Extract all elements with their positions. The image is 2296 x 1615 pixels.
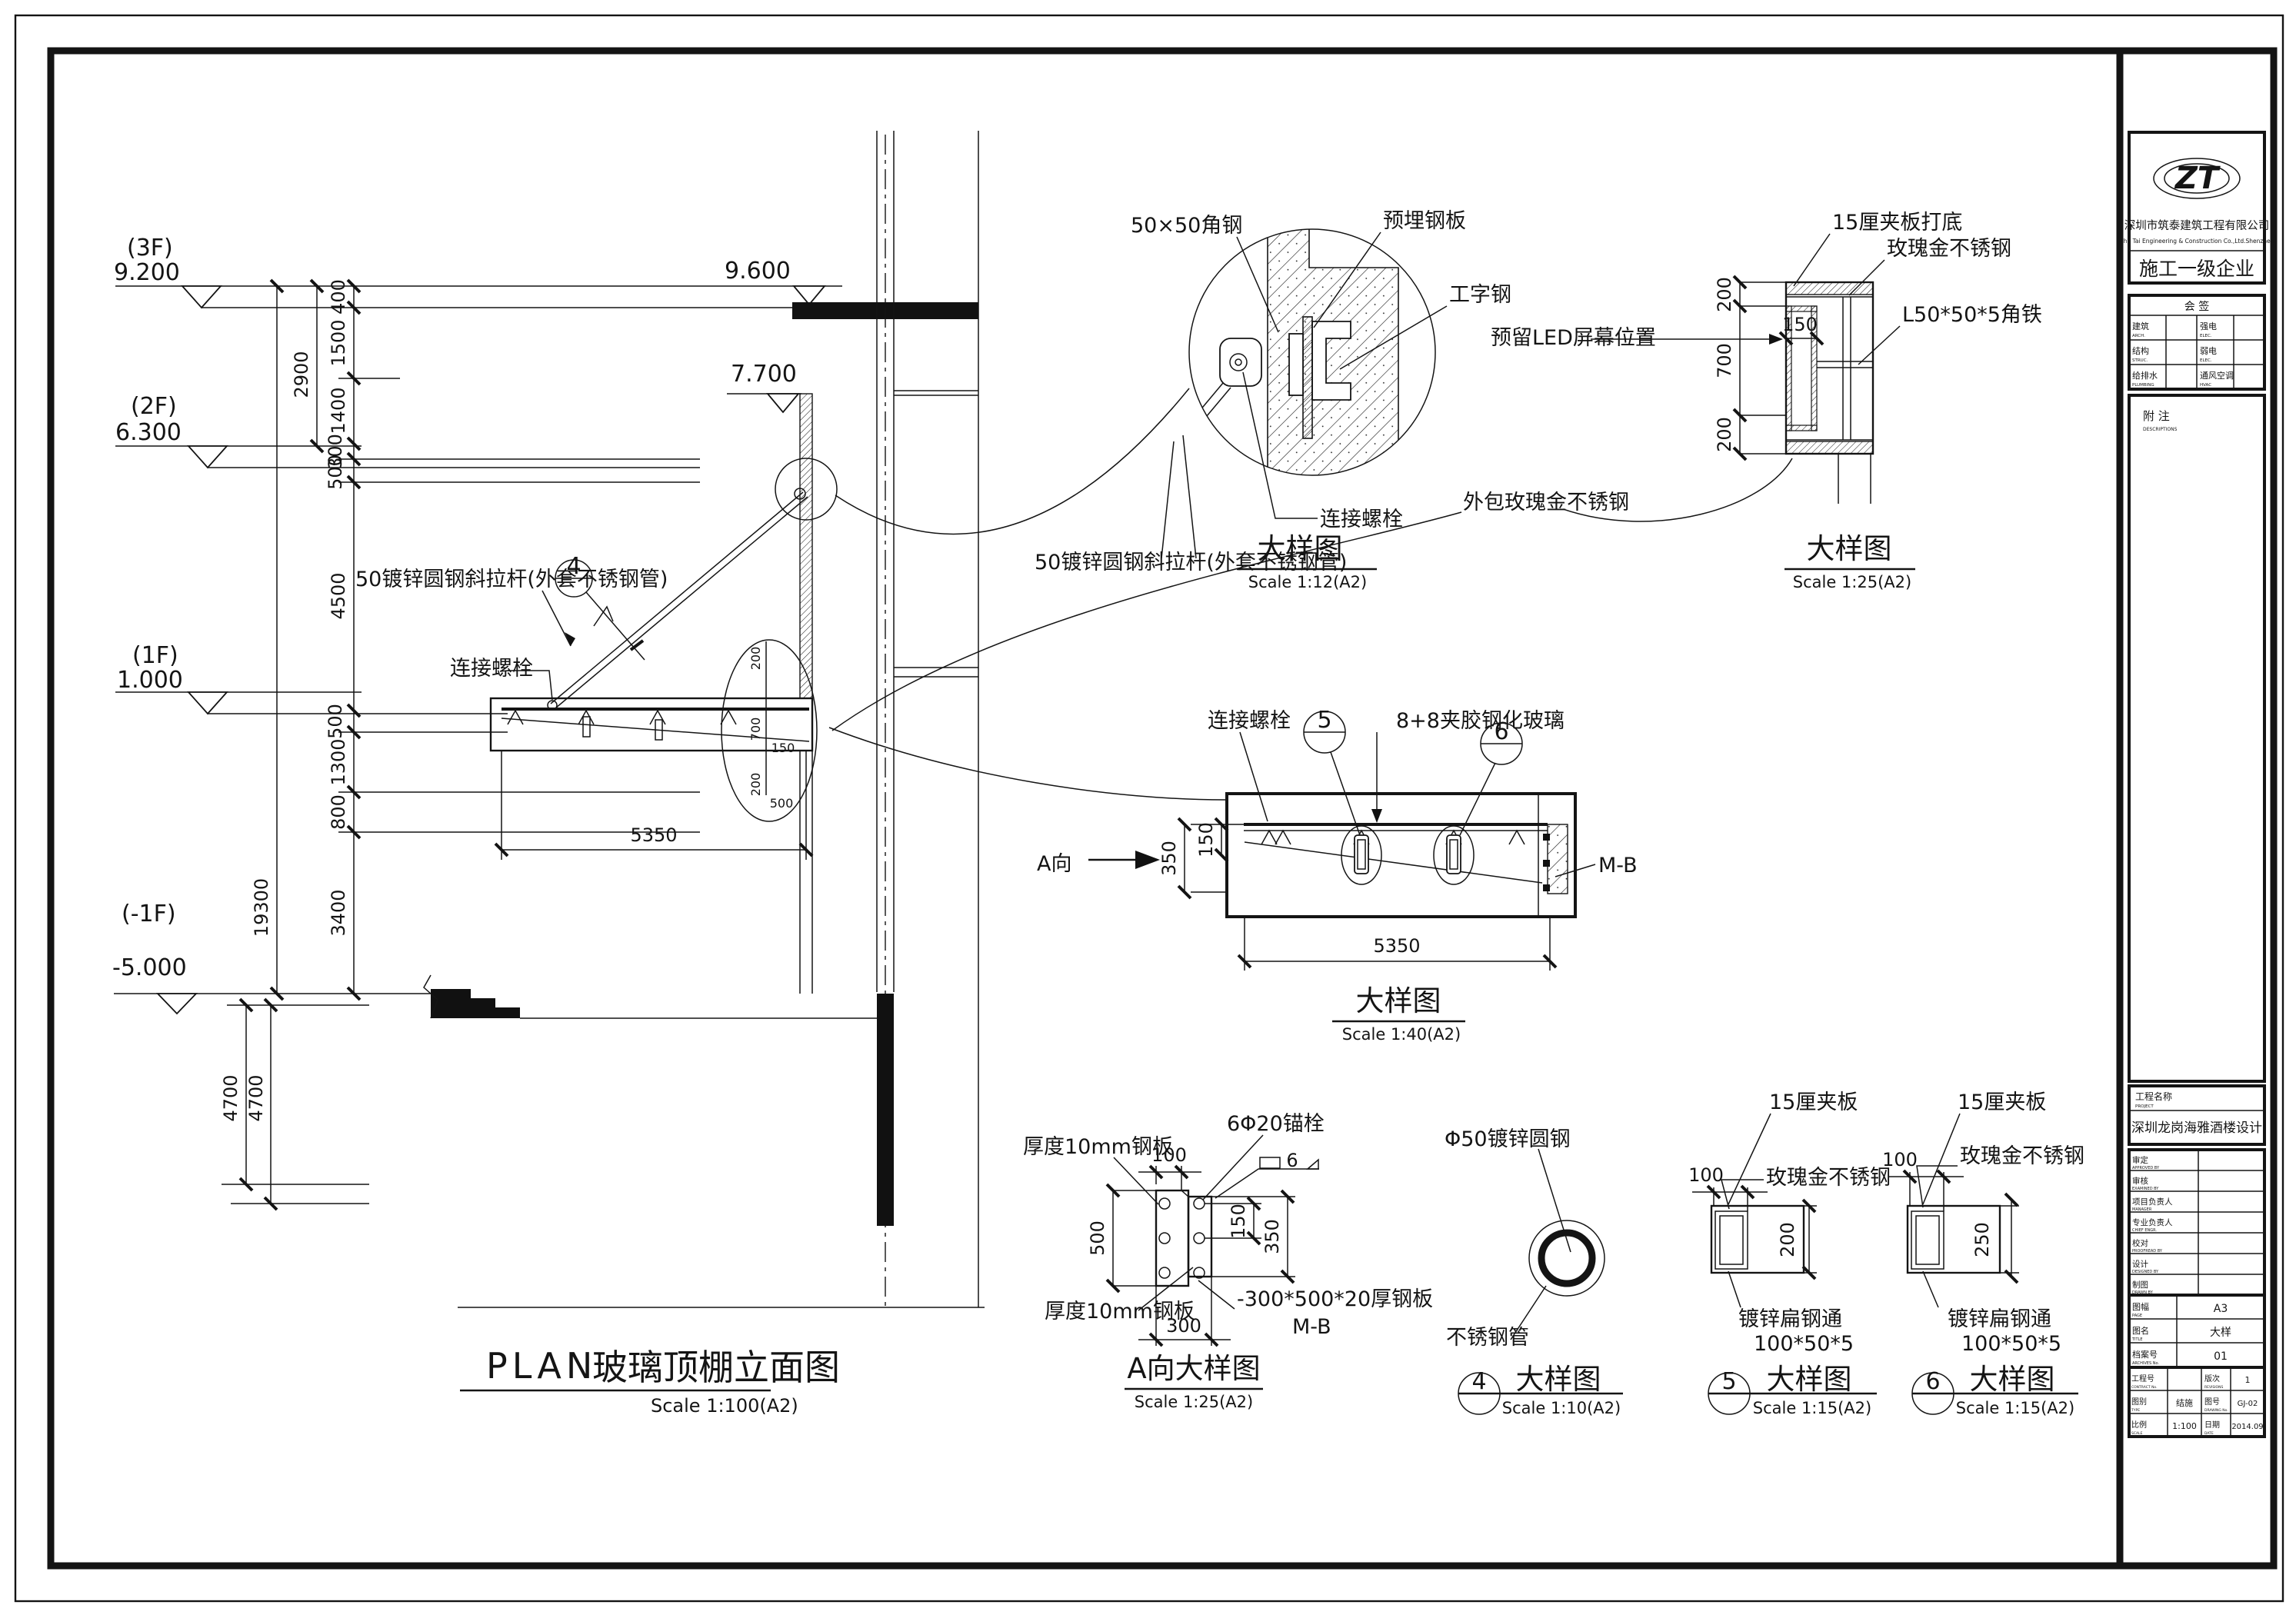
d2-label-rose: 玫瑰金不锈钢 (1887, 237, 2011, 261)
detail-6: 100 250 15厘夹板 玫瑰金不锈钢 镀锌扁钢通 100*50*5 6 大样… (1882, 1091, 2084, 1417)
remark-label: 附 注 (2143, 409, 2170, 423)
d4-label-tube: 不锈钢管 (1446, 1326, 1529, 1350)
title-block: ZT 深圳市筑泰建筑工程有限公司 Zhu Tai Engineering & C… (2120, 132, 2274, 1437)
footer-contract-label: 工程号 (2131, 1374, 2154, 1384)
row-proof-en: PROOFREAD BY (2132, 1249, 2163, 1254)
footer-no-value: GJ-02 (2238, 1400, 2258, 1408)
label-bolt: 连接螺栓 (450, 657, 533, 681)
info-name-label: 图名 (2132, 1325, 2149, 1336)
d1-label-embed: 预埋钢板 (1383, 209, 1466, 233)
mini-dim-200b: 200 (748, 773, 763, 797)
d3-cleats (1261, 831, 1525, 844)
dA-label-base-plate: -300*500*20厚钢板 (1237, 1287, 1433, 1311)
d6-bubble: 6 (1925, 1368, 1940, 1395)
dim-400: 400 (328, 279, 349, 315)
cad-canvas: (3F) 9.200 (2F) 6.300 (1F) 1.000 (-1F) -… (0, 0, 2296, 1615)
sign-plumb-en: PLUMBING (2132, 383, 2154, 388)
sign-arch-en: ARCH. (2132, 334, 2145, 338)
project-label: 工程名称 (2135, 1091, 2172, 1102)
dim-3400: 3400 (328, 889, 349, 936)
detail-2: 200 700 200 150 15厘夹板打底 玫瑰金不锈钢 L50*50*5角… (1463, 211, 2042, 591)
d4-scale: Scale 1:10(A2) (1502, 1399, 1621, 1417)
row-manager: 项目负责人 (2132, 1197, 2173, 1207)
d2-dim-150: 150 (1782, 314, 1818, 335)
sign-elec1: 强电 (2200, 321, 2217, 331)
d2-dim-200b: 200 (1714, 417, 1735, 452)
company-logo: ZT (2174, 161, 2221, 196)
sign-hvac: 通风空调 (2200, 370, 2234, 381)
dA-label-plate-top: 厚度10mm钢板 (1023, 1135, 1173, 1159)
level-9600-value: 9.600 (725, 258, 791, 285)
sign-hvac-en: HVAC (2200, 383, 2211, 388)
level-1f-value: 1.000 (117, 667, 183, 694)
dA-weld-6: 6 (1286, 1150, 1298, 1171)
project-label-en: PROJECT (2135, 1104, 2154, 1109)
level-3f-value: 9.200 (114, 259, 180, 286)
d3-label-bolt: 连接螺栓 (1208, 709, 1291, 733)
info-file-label: 档案号 (2132, 1349, 2158, 1360)
footer-rev-value: 1 (2245, 1375, 2251, 1385)
d3-dim-150: 150 (1195, 822, 1217, 857)
level-2f-value: 6.300 (115, 419, 182, 446)
detail-bubble-4: 4 (566, 553, 581, 580)
d3-label-a-dir: A向 (1037, 852, 1071, 876)
d2-dim-700: 700 (1714, 343, 1735, 378)
row-approved-en: APPROVED BY (2132, 1166, 2160, 1170)
d4-label-rod: Φ50镀锌圆钢 (1445, 1127, 1571, 1151)
d2-scale: Scale 1:25(A2) (1793, 573, 1911, 591)
project-name: 深圳龙岗海雅酒楼设计 (2131, 1121, 2262, 1136)
d3-bubble-5: 5 (1317, 707, 1331, 734)
dim-1300: 1300 (328, 738, 349, 785)
row-examined: 审核 (2132, 1176, 2149, 1186)
dim-500b: 500 (325, 704, 346, 739)
dim-500a: 500 (325, 455, 346, 490)
info-size-en: PAGE (2132, 1314, 2142, 1318)
level-1f-name: (1F) (132, 642, 178, 669)
footer-date-value: 2014.09 (2231, 1423, 2263, 1431)
footer-scale-en: SCALE (2131, 1431, 2143, 1436)
d5-dim-100: 100 (1688, 1164, 1724, 1186)
main-title-cn: 玻璃顶棚立面图 (592, 1347, 840, 1388)
title-block-signatures: 会 签 建筑 ARCH. 强电 ELEC. 结构 STRUC. 弱电 ELEC.… (2129, 295, 2264, 389)
dA-dim-500: 500 (1087, 1220, 1108, 1256)
detail-1: 50×50角钢 预埋钢板 工字钢 50镀锌圆钢斜拉杆(外套不锈钢管) 连接螺栓 … (1035, 209, 1511, 591)
level-b1f-name: (-1F) (122, 901, 176, 927)
dA-dim-150: 150 (1228, 1204, 1249, 1239)
dA-dim-100: 100 (1151, 1144, 1187, 1166)
d3-label-mb: M-B (1598, 854, 1638, 877)
d2-label-angle-iron: L50*50*5角铁 (1902, 303, 2042, 327)
dim-2900: 2900 (291, 351, 312, 398)
mini-dim-150: 150 (771, 741, 795, 755)
dim-4700b: 4700 (245, 1074, 267, 1121)
d1-label-bolt: 连接螺栓 (1320, 508, 1403, 531)
sign-elec1-en: ELEC. (2200, 334, 2212, 338)
dA-label-mb: M-B (1292, 1315, 1331, 1339)
dim-4700a: 4700 (220, 1074, 242, 1121)
d3-scale: Scale 1:40(A2) (1342, 1025, 1461, 1044)
d3-label-glass: 8+8夹胶钢化玻璃 (1396, 709, 1565, 733)
d5-scale: Scale 1:15(A2) (1753, 1399, 1871, 1417)
d3-bubble-6: 6 (1494, 718, 1508, 745)
footer-no-label: 图号 (2204, 1397, 2220, 1407)
remark-label-en: DESCRIPTIONS (2143, 427, 2178, 432)
d2-label-wrap: 外包玫瑰金不锈钢 (1463, 491, 1629, 514)
d6-title: 大样图 (1970, 1363, 2055, 1396)
detail-A: 6 厚度10mm钢板 6Φ20锚栓 厚度10mm钢板 -300*500*20厚钢… (1023, 1112, 1433, 1411)
sign-plumb: 给排水 (2132, 370, 2158, 381)
sign-arch: 建筑 (2132, 321, 2149, 331)
row-proof: 校对 (2132, 1238, 2149, 1248)
dA-label-anchor: 6Φ20锚栓 (1227, 1112, 1325, 1136)
d5-label-rose: 玫瑰金不锈钢 (1766, 1166, 1891, 1190)
info-name-value: 大样 (2210, 1327, 2231, 1339)
row-drawn: 制图 (2132, 1280, 2148, 1290)
row-approved: 审定 (2132, 1155, 2149, 1165)
row-chief: 专业负责人 (2132, 1217, 2173, 1227)
detail-3: 连接螺栓 5 8+8夹胶钢化玻璃 6 A向 M-B 350 150 5350 大… (1037, 707, 1638, 1044)
sign-struc: 结构 (2132, 345, 2149, 356)
d6-label-flat: 镀锌扁钢通 (1948, 1307, 2051, 1331)
dA-title: A向大样图 (1127, 1352, 1260, 1385)
sign-elec2-en: ELEC. (2200, 358, 2212, 363)
title-block-footer: 工程号 CONTRACT No. 版次 REVISIONS 1 图别 TYPE … (2129, 1367, 2264, 1437)
main-title: PLAN 玻璃顶棚立面图 Scale 1:100(A2) (460, 1345, 840, 1417)
d1-label-ibeam: 工字钢 (1449, 283, 1511, 307)
dim-4500: 4500 (328, 572, 349, 619)
title-block-remarks: 附 注 DESCRIPTIONS (2129, 395, 2264, 1081)
footer-cat-label: 图别 (2131, 1397, 2147, 1407)
dA-scale: Scale 1:25(A2) (1135, 1393, 1253, 1411)
d4-bubble: 4 (1471, 1368, 1486, 1395)
elevation-dimension-chains: 2900 19300 400 1500 1400 300 500 4500 50… (220, 279, 700, 1210)
row-designed: 设计 (2132, 1259, 2149, 1269)
d6-label-flat-size: 100*50*5 (1961, 1332, 2061, 1356)
footer-contract-en: CONTRACT No. (2131, 1385, 2158, 1390)
d3-dim-350: 350 (1158, 841, 1180, 876)
glass-cleats (508, 711, 736, 740)
level-2f-name: (2F) (131, 393, 177, 420)
elevation-annotations: 50镀锌圆钢斜拉杆(外套不锈钢管) 连接螺栓 4 (355, 553, 668, 700)
d2-title: 大样图 (1807, 532, 1892, 565)
d1-scale: Scale 1:12(A2) (1248, 573, 1367, 591)
main-title-en: PLAN (486, 1345, 597, 1387)
label-tie-rod: 50镀锌圆钢斜拉杆(外套不锈钢管) (355, 568, 668, 591)
footer-rev-label: 版次 (2204, 1374, 2220, 1384)
d5-label-flat-size: 100*50*5 (1754, 1332, 1854, 1356)
dim-5350: 5350 (630, 824, 677, 846)
d6-dim-100: 100 (1882, 1149, 1918, 1170)
dim-1500: 1500 (328, 319, 349, 366)
row-examined-en: EXAMINED BY (2132, 1187, 2159, 1191)
mini-dim-700: 700 (748, 718, 763, 741)
title-block-info: 图幅 PAGE A3 图名 TITLE 大样 档案号 ARCHIVES No. … (2129, 1295, 2264, 1367)
d6-scale: Scale 1:15(A2) (1956, 1399, 2074, 1417)
sign-struc-en: STRUC. (2132, 358, 2148, 363)
dA-dim-350: 350 (1261, 1219, 1283, 1254)
footer-cat-value: 结施 (2176, 1398, 2193, 1408)
d3-dim-5350: 5350 (1373, 935, 1420, 957)
d5-label-ply: 15厘夹板 (1769, 1091, 1858, 1114)
d5-title: 大样图 (1767, 1363, 1852, 1396)
info-name-en: TITLE (2131, 1337, 2143, 1342)
level-b1f-value: -5.000 (112, 954, 187, 981)
info-size-value: A3 (2214, 1303, 2228, 1315)
mini-dim-200a: 200 (748, 647, 763, 671)
title-block-project: 工程名称 PROJECT 深圳龙岗海雅酒楼设计 (2129, 1086, 2264, 1144)
detail-4: Φ50镀锌圆钢 不锈钢管 4 大样图 Scale 1:10(A2) (1445, 1127, 1623, 1417)
sign-elec2: 弱电 (2200, 346, 2217, 356)
row-designed-en: DESIGNED BY (2132, 1270, 2159, 1274)
info-file-value: 01 (2214, 1350, 2228, 1363)
info-size-label: 图幅 (2132, 1302, 2149, 1312)
elevation-levels: (3F) 9.200 (2F) 6.300 (1F) 1.000 (-1F) -… (112, 235, 842, 1014)
main-title-scale: Scale 1:100(A2) (651, 1395, 798, 1417)
title-block-personnel: 审定 APPROVED BY 审核 EXAMINED BY 项目负责人 MANA… (2129, 1150, 2264, 1295)
d6-dim-250: 250 (1971, 1222, 1993, 1257)
footer-date-label: 日期 (2204, 1420, 2220, 1430)
company-name: 深圳市筑泰建筑工程有限公司 (2124, 219, 2270, 232)
d2-label-ply: 15厘夹板打底 (1832, 211, 1962, 235)
d6-label-rose: 玫瑰金不锈钢 (1960, 1144, 2084, 1168)
footer-date-en: DATE (2204, 1431, 2214, 1436)
d5-bubble: 5 (1721, 1368, 1736, 1395)
footer-scale-label: 比例 (2131, 1420, 2147, 1430)
level-3f-name: (3F) (127, 235, 173, 261)
d5-label-flat: 镀锌扁钢通 (1738, 1307, 1842, 1331)
row-chief-en: CHIEF ENGR. (2132, 1228, 2157, 1233)
dim-19300: 19300 (251, 878, 272, 937)
footer-scale-value: 1:100 (2172, 1421, 2197, 1431)
d6-label-ply: 15厘夹板 (1958, 1091, 2046, 1114)
footer-cat-en: TYPE (2131, 1408, 2140, 1413)
d2-label-led: 预留LED屏幕位置 (1491, 326, 1656, 350)
dim-1400: 1400 (328, 387, 349, 434)
company-name-en: Zhu Tai Engineering & Construction Co.,L… (2120, 238, 2274, 245)
d5-dim-200: 200 (1777, 1222, 1798, 1257)
d3-title: 大样图 (1356, 984, 1441, 1017)
elevation-canopy: 200 700 200 150 500 5350 (491, 458, 837, 860)
company-grade: 施工一级企业 (2139, 258, 2254, 280)
footer-no-en: DRAWING No. (2204, 1408, 2228, 1413)
row-manager-en: MANAGER (2132, 1207, 2152, 1212)
d1-label-angle: 50×50角钢 (1131, 214, 1242, 238)
info-file-en: ARCHIVES No. (2132, 1361, 2159, 1366)
dA-dim-300: 300 (1166, 1315, 1201, 1337)
dim-800: 800 (328, 794, 349, 830)
drawing-sheet: (3F) 9.200 (2F) 6.300 (1F) 1.000 (-1F) -… (0, 0, 2296, 1615)
detail-5: 100 200 15厘夹板 玫瑰金不锈钢 镀锌扁钢通 100*50*5 5 大样… (1688, 1091, 1891, 1417)
d2-dim-200a: 200 (1714, 277, 1735, 312)
d4-title: 大样图 (1516, 1363, 1601, 1396)
footer-rev-en: REVISIONS (2204, 1385, 2223, 1390)
level-7700-value: 7.700 (731, 361, 797, 388)
d1-title: 大样图 (1258, 532, 1343, 565)
sign-title: 会 签 (2184, 300, 2209, 313)
title-block-company: ZT 深圳市筑泰建筑工程有限公司 Zhu Tai Engineering & C… (2120, 132, 2274, 283)
mini-dim-500: 500 (770, 796, 794, 811)
